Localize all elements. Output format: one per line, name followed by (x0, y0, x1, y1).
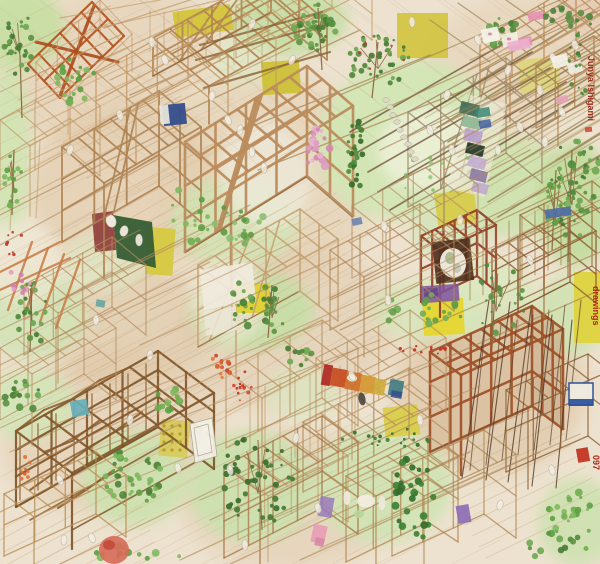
svg-text:Junya Ishigami: Junya Ishigami (586, 56, 596, 121)
svg-text:drawings: drawings (591, 286, 600, 326)
svg-text:097: 097 (591, 455, 600, 470)
